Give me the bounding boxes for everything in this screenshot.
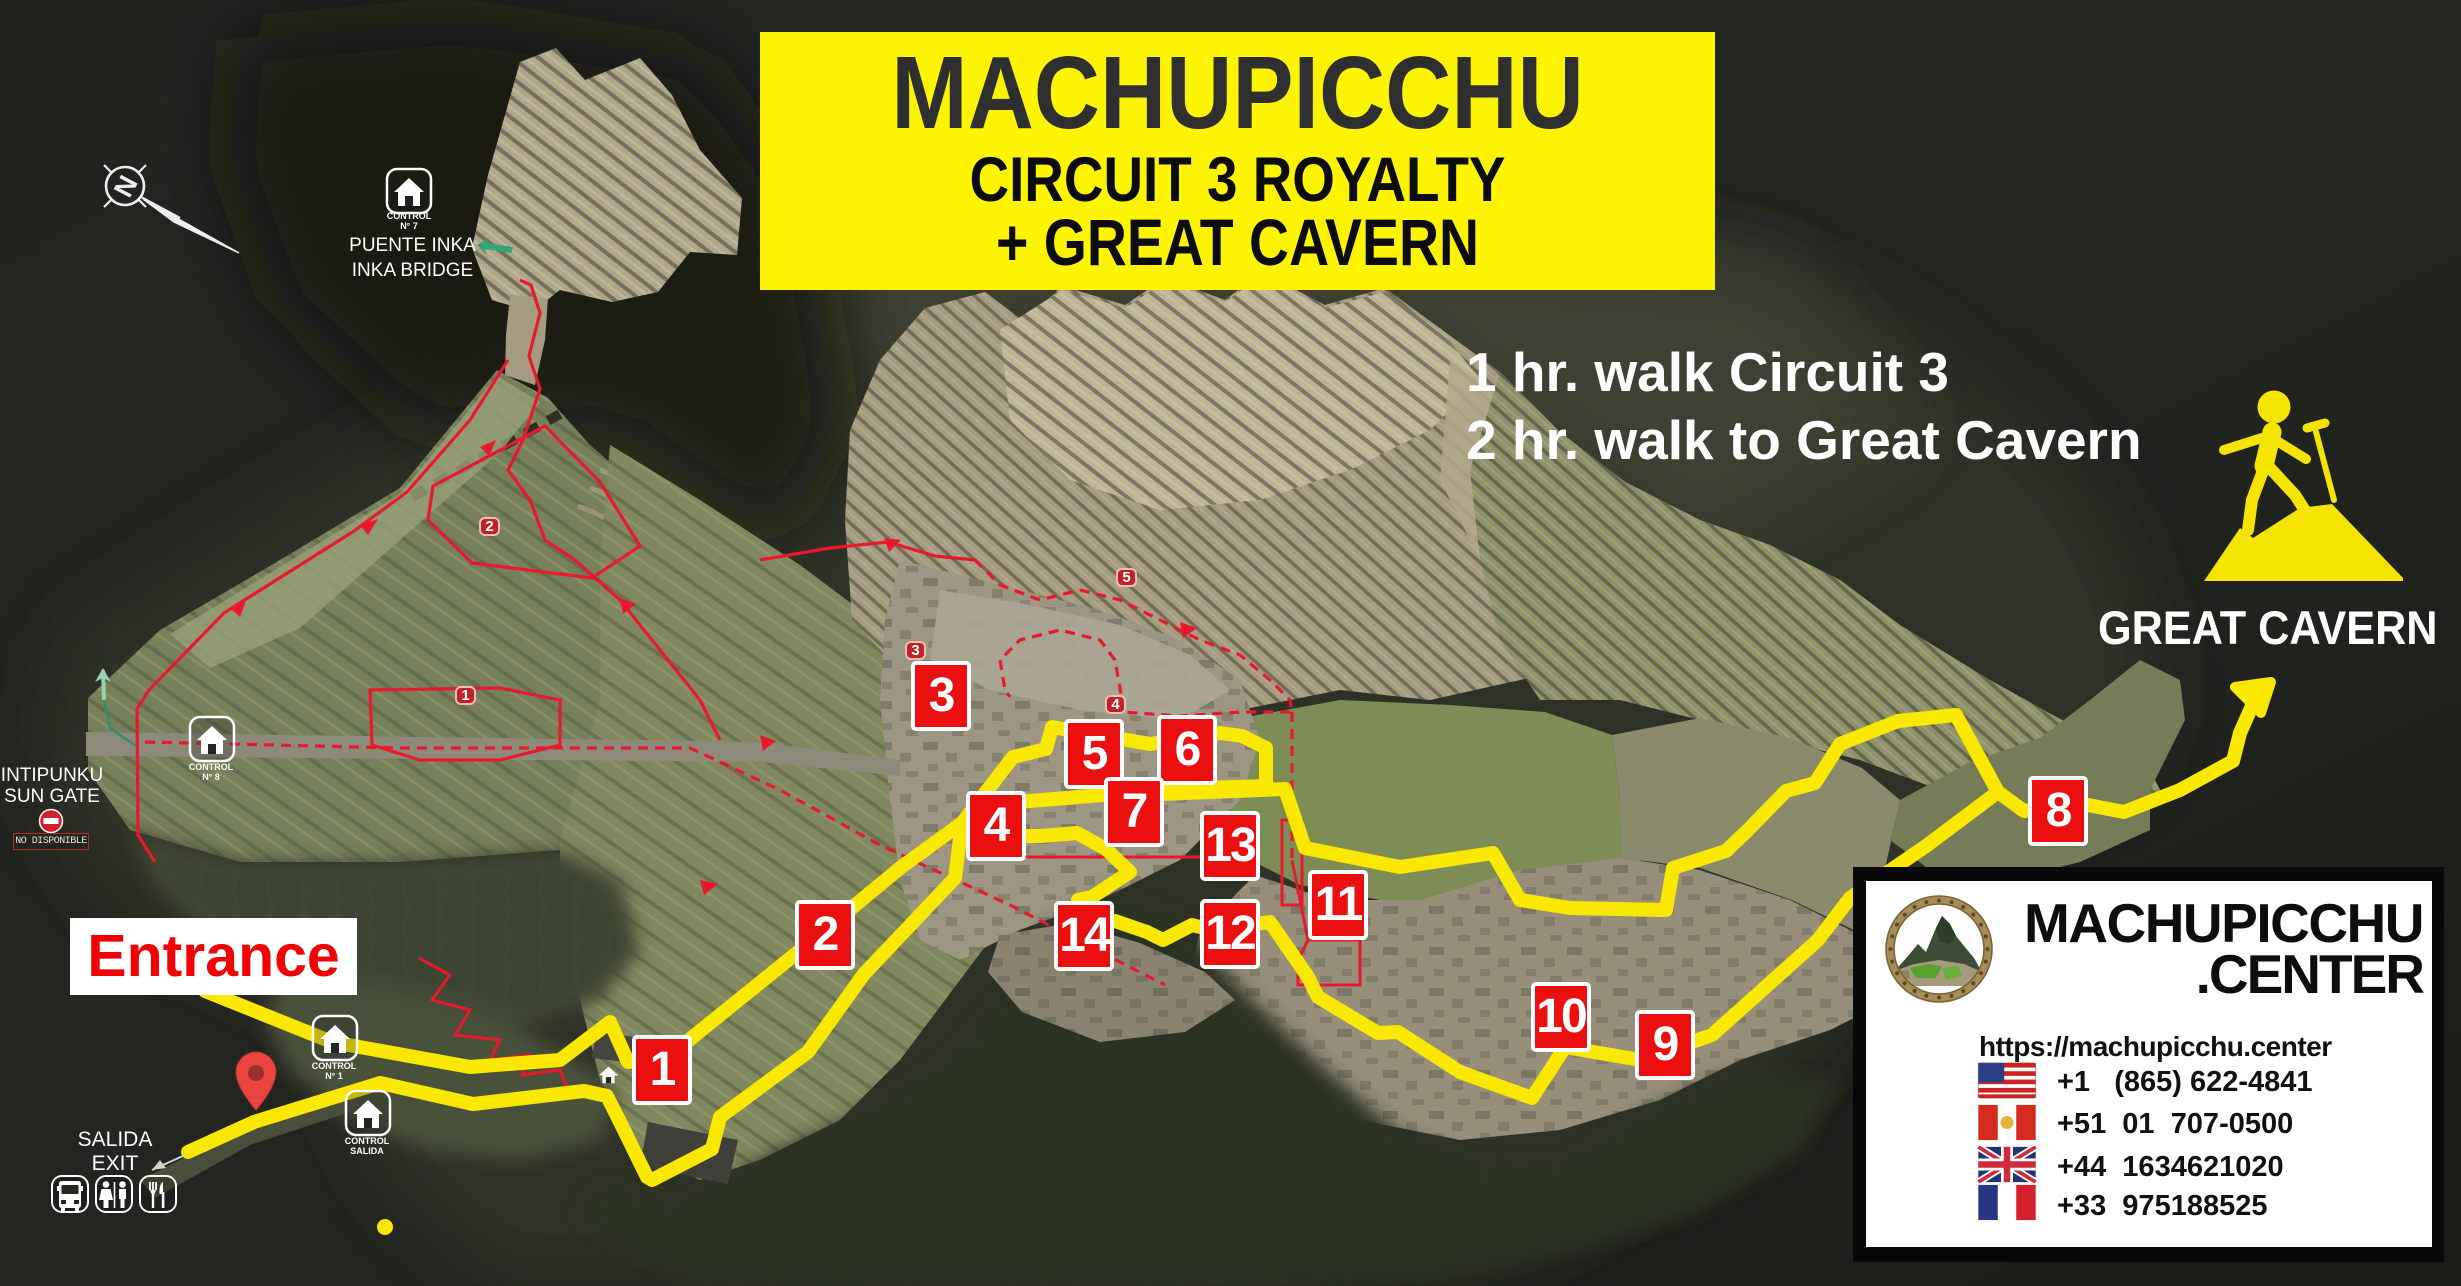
svg-text:N: N [108,171,144,202]
